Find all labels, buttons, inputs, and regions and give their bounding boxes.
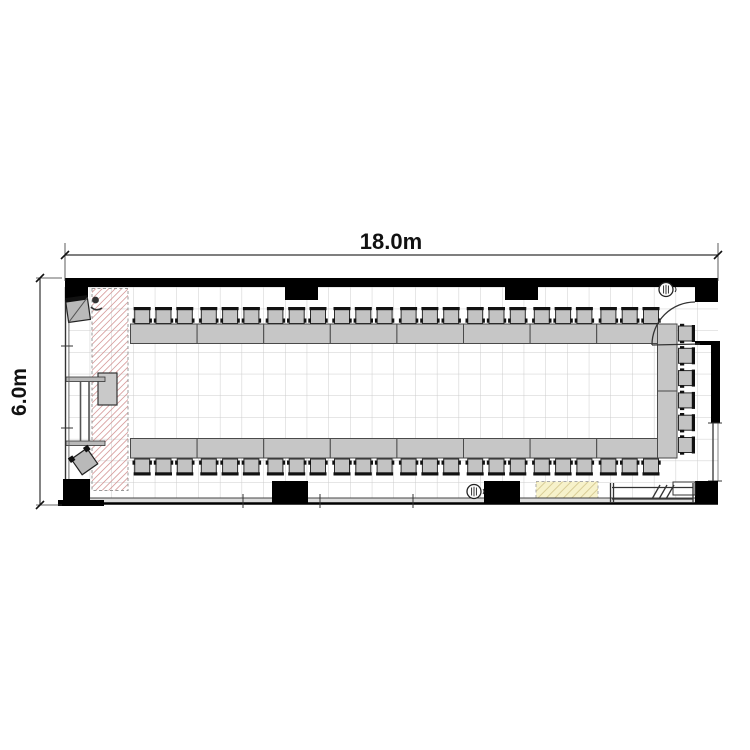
chair	[620, 307, 639, 324]
chair	[220, 459, 239, 476]
chair	[266, 307, 285, 324]
floor-plan-canvas: 18.0m 6.0m	[0, 0, 750, 750]
chair	[466, 459, 485, 476]
chair	[553, 459, 572, 476]
chair	[508, 307, 527, 324]
chair	[532, 307, 551, 324]
chair	[354, 459, 373, 476]
table	[264, 324, 331, 344]
chair	[679, 435, 696, 454]
column	[695, 278, 718, 302]
chair	[679, 391, 696, 410]
table	[330, 439, 397, 459]
chair	[466, 307, 485, 324]
chair	[154, 307, 173, 324]
chair	[332, 307, 351, 324]
chair	[442, 307, 461, 324]
table	[264, 439, 331, 459]
width-dimension-label: 18.0m	[360, 229, 422, 254]
table	[658, 391, 678, 458]
chair	[220, 307, 239, 324]
chair	[375, 459, 394, 476]
column	[272, 481, 308, 503]
table	[397, 439, 464, 459]
chair	[308, 307, 327, 324]
chair	[641, 459, 660, 476]
chair	[487, 459, 506, 476]
table	[530, 324, 597, 344]
chair	[575, 459, 594, 476]
chair	[575, 307, 594, 324]
chair	[133, 307, 152, 324]
height-dimension-label: 6.0m	[8, 368, 31, 416]
table	[197, 324, 264, 344]
dimension-width: 18.0m	[61, 229, 722, 281]
table	[197, 439, 264, 459]
chair	[532, 459, 551, 476]
chair	[679, 324, 696, 343]
column	[285, 278, 318, 300]
chair	[679, 368, 696, 387]
table	[597, 439, 664, 459]
chair	[679, 346, 696, 365]
chair	[354, 307, 373, 324]
column	[695, 481, 718, 503]
chair	[308, 459, 327, 476]
table	[131, 439, 198, 459]
chair	[420, 459, 439, 476]
table	[464, 324, 531, 344]
chair	[599, 459, 618, 476]
chair	[154, 459, 173, 476]
chair	[420, 307, 439, 324]
chair	[332, 459, 351, 476]
chair	[287, 459, 306, 476]
chair	[508, 459, 527, 476]
table	[397, 324, 464, 344]
chair	[242, 307, 261, 324]
column	[505, 278, 538, 300]
chair	[620, 459, 639, 476]
table	[131, 324, 198, 344]
chair	[175, 307, 194, 324]
stage-area	[92, 289, 128, 491]
column	[484, 481, 520, 503]
chair	[442, 459, 461, 476]
table	[658, 324, 678, 391]
chair	[199, 307, 218, 324]
chair	[133, 459, 152, 476]
dimension-height: 6.0m	[8, 274, 62, 509]
chair	[553, 307, 572, 324]
chair	[199, 459, 218, 476]
chair	[679, 413, 696, 432]
chair	[266, 459, 285, 476]
chair	[175, 459, 194, 476]
chair	[641, 307, 660, 324]
chair	[375, 307, 394, 324]
chair	[599, 307, 618, 324]
table	[330, 324, 397, 344]
floor-plan-drawing: 18.0m 6.0m	[0, 0, 750, 750]
chair	[287, 307, 306, 324]
chair	[399, 307, 418, 324]
table	[464, 439, 531, 459]
chair	[487, 307, 506, 324]
chair	[242, 459, 261, 476]
chair	[399, 459, 418, 476]
table	[530, 439, 597, 459]
